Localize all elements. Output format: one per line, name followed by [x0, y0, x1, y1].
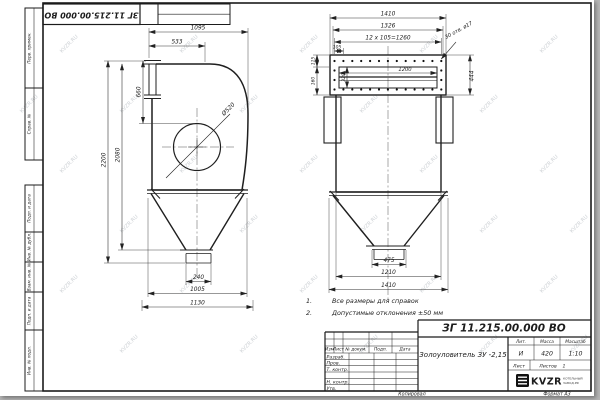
- footer-format-label: Формат А3: [543, 392, 570, 397]
- dimensions-side: 1095 533 2200 2080 660 Ø520 240 1005 113…: [102, 26, 254, 312]
- dimensions-front: 1410 1326 12 x 105=1260 105 30 отв. ø17 …: [311, 12, 476, 294]
- dim-front-1210: 1210: [381, 270, 396, 276]
- watermark: KVZR.RU KVZR.RU KVZR.RU KVZR.RU KVZR.RU …: [19, 34, 590, 355]
- titleblock-sheets-value: 1: [563, 363, 566, 369]
- watermark-text: KVZR.RU: [19, 94, 40, 115]
- margin-field-label: Подп. и дата: [27, 194, 32, 223]
- titleblock-row-utv: Утв.: [327, 386, 337, 392]
- watermark-text: KVZR.RU: [239, 94, 260, 115]
- dim-front-105: 105: [333, 45, 342, 51]
- dim-front-1410-top: 1410: [381, 12, 396, 18]
- watermark-text: KVZR.RU: [539, 154, 560, 175]
- titleblock-lit-value: И: [519, 351, 524, 358]
- watermark-text: KVZR.RU: [59, 274, 80, 295]
- title-block: ЗГ 11.215.00.000 ВО Золоуловитель ЗУ -2,…: [325, 320, 591, 392]
- titleblock-row-tkontr: Т. контр.: [327, 367, 349, 373]
- titleblock-mass-label: Масса: [540, 339, 554, 345]
- watermark-text: KVZR.RU: [59, 154, 80, 175]
- titleblock-mass-value: 420: [541, 351, 553, 358]
- watermark-text: KVZR.RU: [299, 34, 320, 55]
- watermark-text: KVZR.RU: [239, 214, 260, 235]
- dim-front-1410-bottom: 1410: [381, 283, 396, 289]
- titleblock-row-razrab: Разраб.: [327, 354, 345, 360]
- note-text: Допустимые отклонения ±50 мм: [331, 309, 443, 317]
- titleblock-col-podp: Подп.: [374, 347, 387, 353]
- dim-side-660: 660: [137, 86, 143, 97]
- dim-front-320: 320: [341, 73, 347, 82]
- titleblock-part-name: Золоуловитель ЗУ -2,15: [419, 351, 507, 359]
- footer-copied-label: Копировал: [398, 392, 425, 397]
- note-text: Все размеры для справок: [332, 297, 419, 305]
- note-number: 1.: [306, 297, 312, 305]
- watermark-text: KVZR.RU: [419, 274, 440, 295]
- dim-front-bolt-pitch: 12 x 105=1260: [365, 36, 410, 42]
- dim-front-1200: 1200: [398, 67, 412, 73]
- watermark-text: KVZR.RU: [239, 334, 260, 355]
- dim-side-2080: 2080: [116, 147, 122, 162]
- watermark-text: KVZR.RU: [479, 94, 500, 115]
- watermark-text: KVZR.RU: [59, 34, 80, 55]
- watermark-text: KVZR.RU: [539, 34, 560, 55]
- margin-field-label: Подп. и дата: [27, 296, 32, 325]
- margin-field-label: Справ. №: [27, 113, 32, 134]
- drawing-sheet-svg: KVZR.RU KVZR.RU KVZR.RU KVZR.RU KVZR.RU …: [0, 0, 594, 396]
- note-number: 2.: [306, 309, 312, 317]
- notes: 1. Все размеры для справок 2. Допустимые…: [306, 297, 443, 317]
- dim-side-1005: 1005: [190, 287, 205, 293]
- watermark-text: KVZR.RU: [479, 214, 500, 235]
- logo-text: KVZR: [531, 377, 562, 388]
- titleblock-doc-number: ЗГ 11.215.00.000 ВО: [442, 323, 565, 335]
- watermark-text: KVZR.RU: [299, 154, 320, 175]
- dim-front-160: 160: [311, 77, 317, 86]
- logo-subtext-2: ЗАВОД.РФ: [563, 381, 580, 385]
- logo-subtext-1: КОТЕЛЬНЫЙ: [563, 376, 583, 381]
- dim-side-240: 240: [193, 275, 204, 281]
- drawing-sheet: KVZR.RU KVZR.RU KVZR.RU KVZR.RU KVZR.RU …: [0, 0, 594, 396]
- watermark-text: KVZR.RU: [119, 334, 140, 355]
- dim-side-2200: 2200: [102, 152, 108, 167]
- margin-field-label: Инв. № дубл.: [27, 233, 32, 262]
- dim-front-475: 475: [383, 258, 394, 264]
- kvzr-logo: KVZR КОТЕЛЬНЫЙ ЗАВОД.РФ: [516, 374, 583, 388]
- watermark-text: KVZR.RU: [539, 274, 560, 295]
- titleblock-sheets-label: Листов: [538, 363, 557, 369]
- dim-side-1095: 1095: [191, 26, 206, 32]
- watermark-text: KVZR.RU: [179, 154, 200, 175]
- titleblock-row-nkontr: Н. контр.: [327, 380, 349, 386]
- titleblock-col-data: Дата: [398, 347, 410, 353]
- stamp-doc-number: ЗГ 11.215.00.000 ВО: [44, 10, 138, 19]
- dim-front-444: 444: [470, 70, 476, 81]
- titleblock-col-list: Лист: [332, 347, 344, 353]
- dim-side-1130: 1130: [190, 301, 205, 307]
- margin-field-label: Взам. инв. №: [27, 262, 32, 291]
- dim-front-holes-note: 30 отв. ø17: [444, 20, 474, 40]
- footer: Копировал Формат А3: [398, 392, 570, 397]
- side-view: [144, 61, 248, 281]
- watermark-text: KVZR.RU: [359, 94, 380, 115]
- margin-field-label: Инв. № подл.: [27, 346, 32, 375]
- dim-front-1326: 1326: [381, 24, 396, 30]
- watermark-text: KVZR.RU: [569, 214, 590, 235]
- titleblock-scale-label: Масштаб: [565, 339, 586, 345]
- dim-side-533: 533: [171, 40, 182, 46]
- watermark-text: KVZR.RU: [299, 274, 320, 295]
- dim-front-115: 115: [311, 57, 317, 66]
- titleblock-col-docnum: № докум.: [344, 347, 366, 353]
- watermark-text: KVZR.RU: [419, 154, 440, 175]
- titleblock-scale-value: 1:10: [569, 351, 583, 358]
- titleblock-sheet-label: Лист: [512, 363, 525, 369]
- margin-field-label: Перв. примен.: [27, 32, 32, 63]
- top-stamp: ЗГ 11.215.00.000 ВО: [43, 4, 230, 25]
- titleblock-lit-label: Лит.: [515, 339, 526, 345]
- titleblock-row-prov: Пров.: [327, 361, 341, 367]
- watermark-text: KVZR.RU: [419, 34, 440, 55]
- margin-column: Перв. примен. Справ. № Подп. и дата Инв.…: [25, 8, 43, 391]
